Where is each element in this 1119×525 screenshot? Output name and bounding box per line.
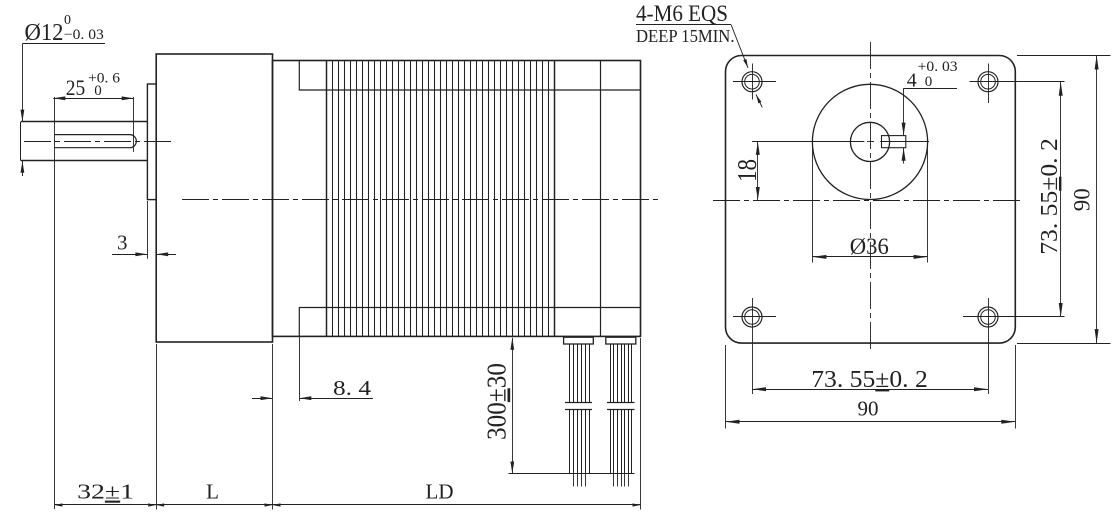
svg-text:4-M6 EQS: 4-M6 EQS xyxy=(636,1,728,26)
svg-text:300±30: 300±30 xyxy=(482,363,512,440)
svg-text:+0. 03: +0. 03 xyxy=(918,59,958,75)
svg-text:32±1: 32±1 xyxy=(77,480,134,504)
svg-text:DEEP 15MIN.: DEEP 15MIN. xyxy=(636,26,735,46)
svg-text:0: 0 xyxy=(94,83,102,99)
svg-text:3: 3 xyxy=(117,231,128,255)
svg-text:0: 0 xyxy=(925,74,933,90)
svg-text:90: 90 xyxy=(1070,188,1095,211)
svg-text:LD: LD xyxy=(426,480,454,504)
svg-text:−0. 03: −0. 03 xyxy=(64,27,104,43)
svg-text:90: 90 xyxy=(858,396,879,420)
svg-text:0: 0 xyxy=(64,13,71,28)
svg-text:L: L xyxy=(206,480,219,504)
svg-text:8. 4: 8. 4 xyxy=(333,376,372,400)
svg-text:Ø36: Ø36 xyxy=(850,234,889,259)
svg-text:73. 55±0. 2: 73. 55±0. 2 xyxy=(1037,138,1063,255)
svg-text:25: 25 xyxy=(66,75,86,100)
svg-text:Ø12: Ø12 xyxy=(25,20,64,46)
svg-text:+0. 6: +0. 6 xyxy=(88,71,121,87)
